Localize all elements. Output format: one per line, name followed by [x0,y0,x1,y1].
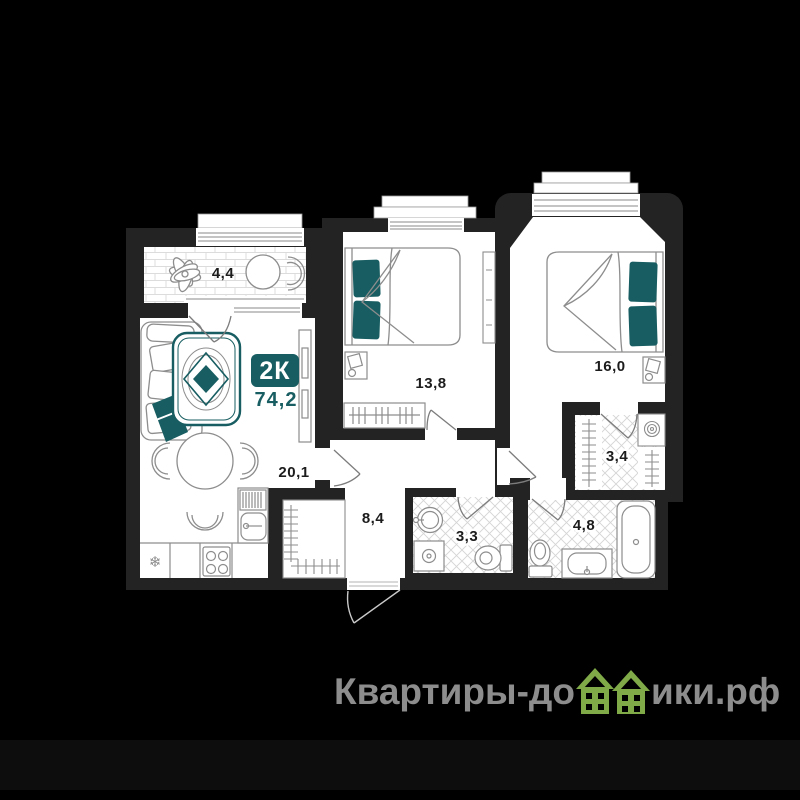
area-label-bathroom-1: 3,3 [456,528,478,545]
type-badge-text: 2К [259,357,290,385]
house-icon [574,663,652,717]
nightstand-2 [643,357,665,383]
toilet-icon [475,545,512,571]
shelf-unit [483,252,495,343]
apartment-type-badge: 2К 74,2 [251,354,299,411]
area-label-living: 20,1 [278,464,309,481]
area-label-balcony: 4,4 [212,265,235,282]
area-label-bedroom-1: 13,8 [415,375,446,392]
tv-unit [299,330,311,442]
area-label-bedroom-2: 16,0 [594,358,625,375]
bedroom-1-window [388,218,464,232]
entry-threshold [347,578,400,590]
pillow [628,306,657,347]
rug [173,333,240,425]
bedroom-2-window [532,194,640,216]
floor-plan-page: ❄ [0,0,800,800]
area-label-hallway: 8,4 [362,510,385,527]
entry-door [348,590,400,623]
area-label-wardrobe-room: 3,4 [606,448,629,465]
pillow [352,260,380,298]
balcony-table [246,255,280,289]
toilet-icon [529,540,552,577]
watermark-text-right: ики.рф [651,671,780,713]
fridge-icon: ❄ [149,554,162,571]
hall-closet [283,500,345,578]
bed-2 [547,252,663,352]
washing-machine-icon [638,414,665,446]
bath-sink-icon [562,549,612,578]
bed-1 [345,248,460,345]
bathtub-icon [617,501,655,578]
nightstand-1 [345,352,367,379]
pillow [352,301,380,340]
watermark: Квартиры-до ики.рф [334,664,780,720]
pillow [628,262,657,303]
balcony-window [196,228,304,246]
wardrobe-icon [344,403,425,428]
watermark-text-left: Квартиры-до [334,671,575,713]
total-area-label: 74,2 [255,389,298,411]
area-label-bathroom-2: 4,8 [573,517,595,534]
washing-machine-icon [414,541,444,571]
